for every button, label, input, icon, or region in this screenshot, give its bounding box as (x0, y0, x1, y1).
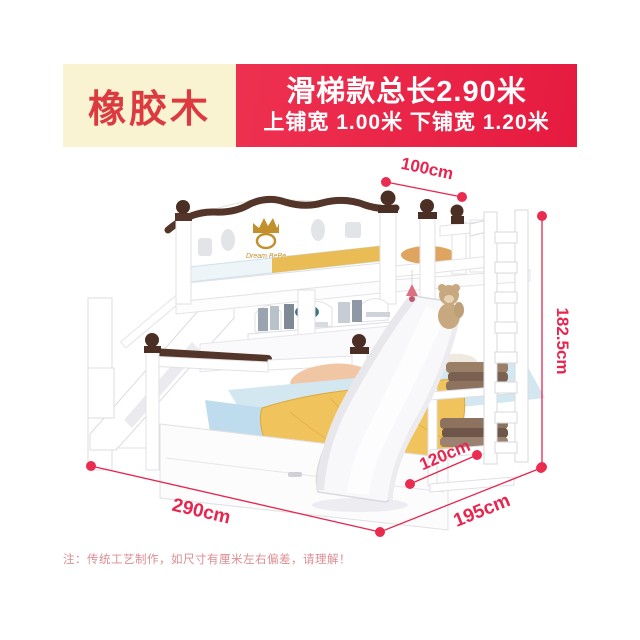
dim-dot (536, 463, 546, 473)
dim-dot (472, 450, 482, 460)
post-finial (176, 200, 190, 214)
product-image: 橡胶木 滑梯款总长2.90米 上铺宽 1.00米 下铺宽 1.20米 D (0, 0, 640, 640)
teddy-bear (438, 284, 464, 329)
dim-dot (86, 461, 96, 471)
dim-dot (537, 211, 547, 221)
craftsmanship-footnote: 注：传统工艺制作，如尺寸有厘米左右偏差，请理解！ (63, 551, 483, 567)
post-finial (420, 199, 434, 213)
dim-overall-depth: 195cm (451, 490, 514, 532)
post-finial (451, 205, 464, 218)
dim-dot (381, 177, 391, 187)
post-finial (381, 191, 396, 206)
post-finial (145, 333, 159, 347)
post-finial (352, 334, 366, 348)
dim-overall-height: 182.5cm (553, 307, 572, 374)
dim-upper-bunk-width: 100cm (399, 154, 455, 184)
dim-dot (457, 192, 467, 202)
dim-dot (405, 479, 415, 489)
bunk-bed-illustration: Dream BeBe (0, 0, 640, 640)
drawer-handle (288, 472, 302, 477)
